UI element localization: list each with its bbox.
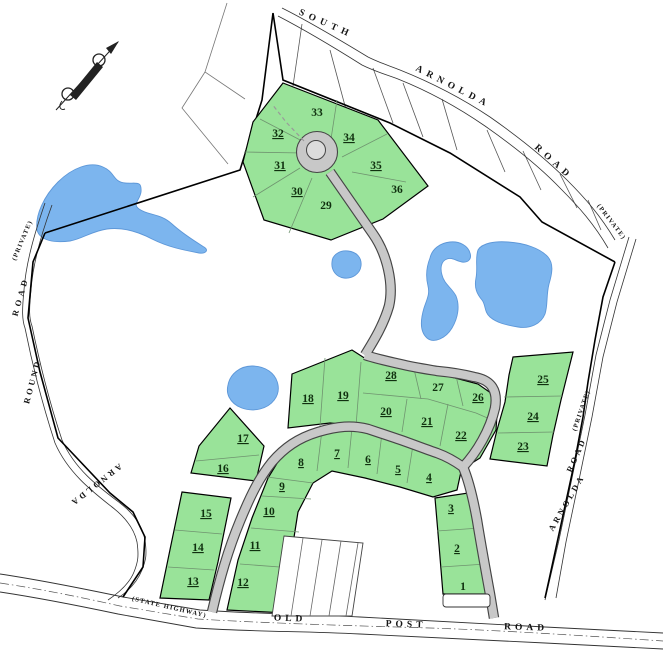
road-edge [545, 237, 629, 600]
lot-label-1: 1 [460, 581, 466, 593]
lot-label-32: 32 [272, 128, 284, 140]
lot-label-22: 22 [455, 430, 467, 442]
lot-label-13: 13 [187, 576, 199, 588]
lot-label-23: 23 [517, 441, 529, 453]
lot-cluster-east [490, 352, 573, 466]
lot-label-24: 24 [527, 411, 539, 423]
lot-label-9: 9 [279, 481, 285, 493]
road-label-road-west: ROAD [10, 275, 31, 317]
lot-label-30: 30 [291, 186, 303, 198]
lot-label-4: 4 [426, 472, 432, 484]
road-label-road-east: ROAD [564, 436, 588, 474]
lot-label-21: 21 [421, 416, 433, 428]
arnolda-round-road [23, 203, 146, 600]
lot-label-18: 18 [302, 393, 314, 405]
pond-middle-left [421, 242, 470, 341]
lot-label-35: 35 [370, 160, 382, 172]
road-label-post: POST [386, 619, 427, 630]
lot-label-31: 31 [274, 160, 286, 172]
lot-label-29: 29 [320, 200, 332, 212]
lot-label-12: 12 [237, 577, 249, 589]
road-label-road-bottom: ROAD [504, 622, 548, 634]
north-arrow-icon [56, 41, 119, 110]
road-label-arnolda-east: ARNOLDA [546, 472, 587, 532]
pond-west-small [227, 366, 278, 410]
lot-label-25: 25 [537, 374, 549, 386]
road-label-private-west: (PRIVATE) [11, 219, 34, 261]
lot-label-10: 10 [263, 506, 275, 518]
lot-label-8: 8 [298, 457, 304, 469]
road-edge [23, 203, 138, 600]
lot-label-27: 27 [432, 382, 444, 394]
lot-label-16: 16 [217, 463, 229, 475]
lot-label-6: 6 [365, 454, 371, 466]
lot-label-28: 28 [385, 370, 397, 382]
cul-de-sac-island [307, 141, 326, 160]
plat-svg: SOUTH ARNOLDA ROAD (PRIVATE) (PRIVATE) R… [0, 0, 663, 653]
lot-label-34: 34 [343, 132, 355, 144]
subdivision-plat-map: SOUTH ARNOLDA ROAD (PRIVATE) (PRIVATE) R… [0, 0, 663, 653]
lot-label-3: 3 [448, 503, 454, 515]
lot-label-5: 5 [395, 464, 401, 476]
lot-label-36: 36 [391, 184, 403, 196]
lot-label-15: 15 [200, 508, 212, 520]
lot-label-19: 19 [337, 390, 349, 402]
road-edge [556, 239, 636, 598]
lot-label-33: 33 [311, 107, 323, 119]
pond-center-small [332, 251, 361, 278]
pond-middle-right [475, 242, 552, 328]
road-label-arnolda-west: ARNOLDA [68, 462, 125, 509]
neighbor-parcel-lines [182, 3, 245, 164]
road-edge [30, 205, 146, 598]
small-white-parcel [443, 594, 490, 607]
arnolda-road-east [545, 237, 636, 600]
lot-label-14: 14 [192, 542, 204, 554]
lot-label-26: 26 [472, 392, 484, 404]
lot-label-7: 7 [334, 448, 340, 460]
lot-label-2: 2 [454, 543, 460, 555]
road-label-round-west: ROUND [21, 358, 43, 405]
lot-label-11: 11 [250, 540, 261, 552]
striped-parcel [272, 536, 363, 616]
road-label-old: OLD [274, 613, 307, 624]
lot-label-20: 20 [380, 406, 392, 418]
lot-label-17: 17 [237, 433, 249, 445]
